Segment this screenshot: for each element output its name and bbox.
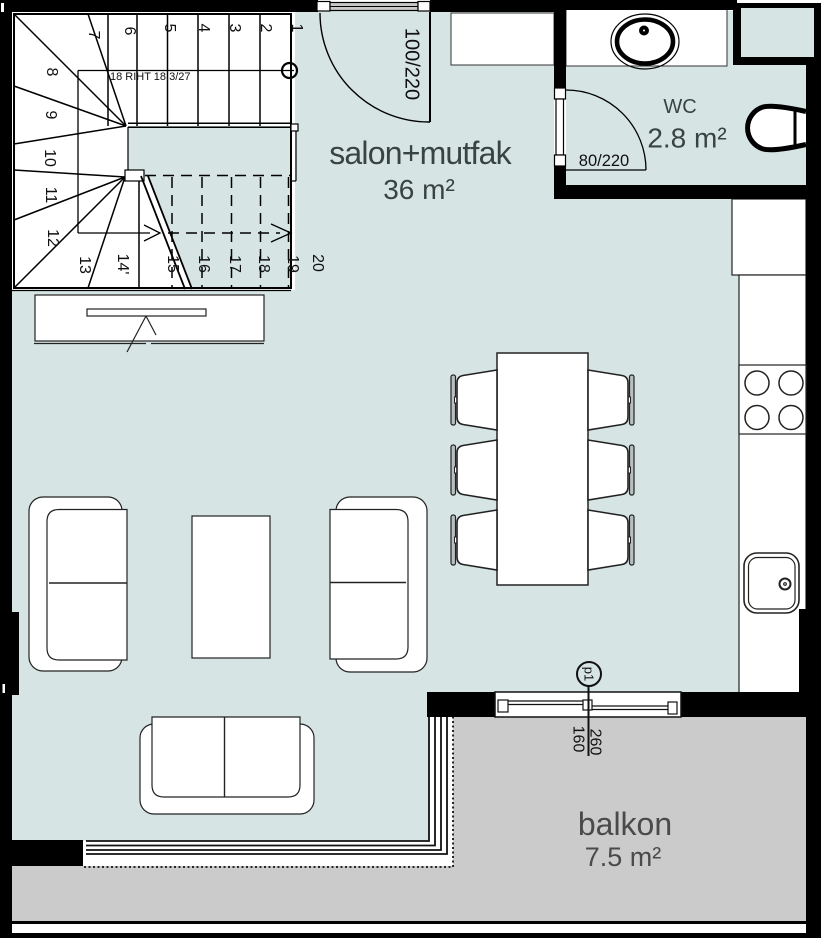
svg-text:100/220: 100/220 <box>401 28 423 100</box>
svg-text:WC: WC <box>663 96 696 118</box>
svg-text:15: 15 <box>164 255 181 273</box>
svg-text:17: 17 <box>226 255 243 273</box>
svg-text:36 m²: 36 m² <box>383 174 455 205</box>
svg-text:2: 2 <box>257 24 274 33</box>
svg-text:4: 4 <box>195 24 212 33</box>
svg-text:7: 7 <box>85 31 102 40</box>
svg-text:3: 3 <box>226 24 243 33</box>
svg-text:19: 19 <box>284 255 301 273</box>
svg-text:1: 1 <box>288 24 305 33</box>
svg-text:18: 18 <box>255 255 272 273</box>
svg-text:8: 8 <box>43 68 60 77</box>
svg-text:9: 9 <box>42 111 59 120</box>
svg-text:16: 16 <box>195 255 212 273</box>
svg-text:80/220: 80/220 <box>579 152 629 170</box>
svg-text:14': 14' <box>114 254 131 275</box>
svg-text:5: 5 <box>161 24 178 33</box>
svg-text:p1: p1 <box>582 667 597 681</box>
svg-text:balkon: balkon <box>578 806 672 842</box>
svg-text:260: 260 <box>587 729 604 756</box>
svg-text:18 RIHT 18.3/27: 18 RIHT 18.3/27 <box>110 71 191 83</box>
svg-text:2.8 m²: 2.8 m² <box>647 123 726 154</box>
svg-text:10: 10 <box>41 149 58 167</box>
svg-text:13: 13 <box>76 256 93 274</box>
svg-text:160: 160 <box>570 726 587 753</box>
svg-text:12: 12 <box>44 229 61 247</box>
svg-text:20: 20 <box>309 254 326 272</box>
svg-text:salon+mutfak: salon+mutfak <box>329 135 512 171</box>
svg-text:6: 6 <box>121 27 138 36</box>
svg-text:7.5 m²: 7.5 m² <box>585 842 662 872</box>
svg-text:11: 11 <box>42 187 59 204</box>
